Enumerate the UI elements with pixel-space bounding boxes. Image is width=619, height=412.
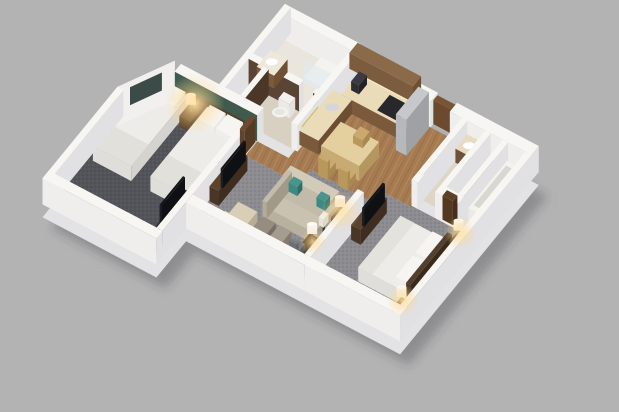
toilet-seat (274, 109, 285, 115)
glow-bedroom1-lamp (165, 74, 225, 134)
floorplan-3d-render (0, 0, 619, 412)
glow-living-lamp (321, 191, 361, 231)
glow-bedroom2-lamp-a (444, 217, 476, 249)
floorplan-render-stage (0, 0, 619, 412)
glow-bedroom2-lamp-b (386, 284, 418, 316)
glow-desk-lamp (300, 229, 326, 255)
wall-bath2-south-a (412, 172, 424, 209)
bathroom1-sink (266, 58, 278, 65)
kitchen-sink (325, 103, 339, 111)
